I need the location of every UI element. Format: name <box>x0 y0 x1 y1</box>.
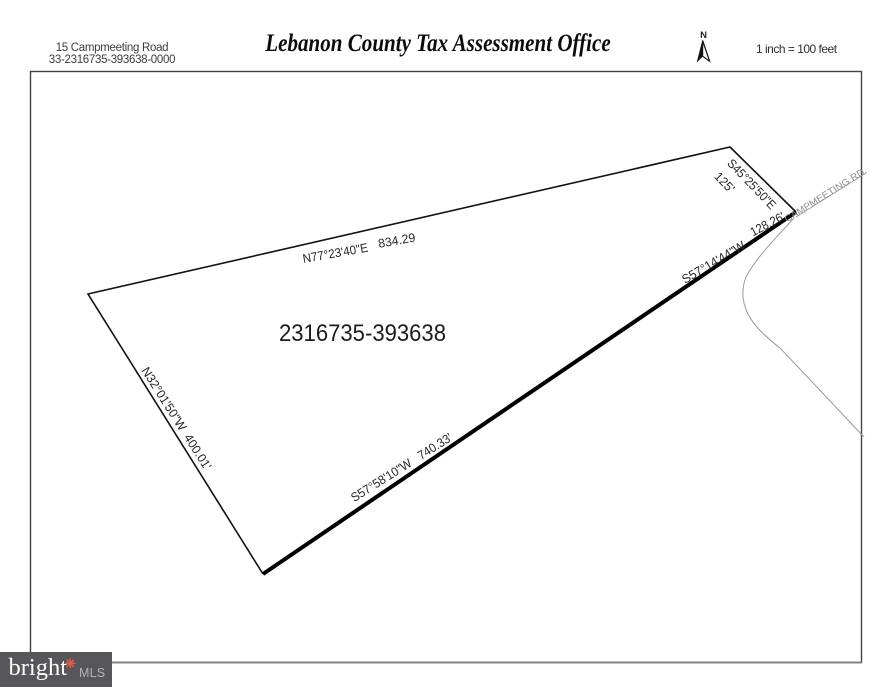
svg-text:128.26': 128.26' <box>748 209 787 239</box>
svg-text:N32°01'50"W 400.01': N32°01'50"W 400.01' <box>138 365 214 473</box>
svg-text:2316735-393638: 2316735-393638 <box>279 320 446 347</box>
svg-text:S57°14'44"W: S57°14'44"W <box>679 238 747 286</box>
svg-text:834.29: 834.29 <box>377 231 416 251</box>
svg-text:CAMPMEETING RD.: CAMPMEETING RD. <box>783 165 869 225</box>
svg-text:N77°23'40"E: N77°23'40"E <box>302 241 369 266</box>
svg-text:S57°58'10"W 740.33': S57°58'10"W 740.33' <box>348 430 454 504</box>
